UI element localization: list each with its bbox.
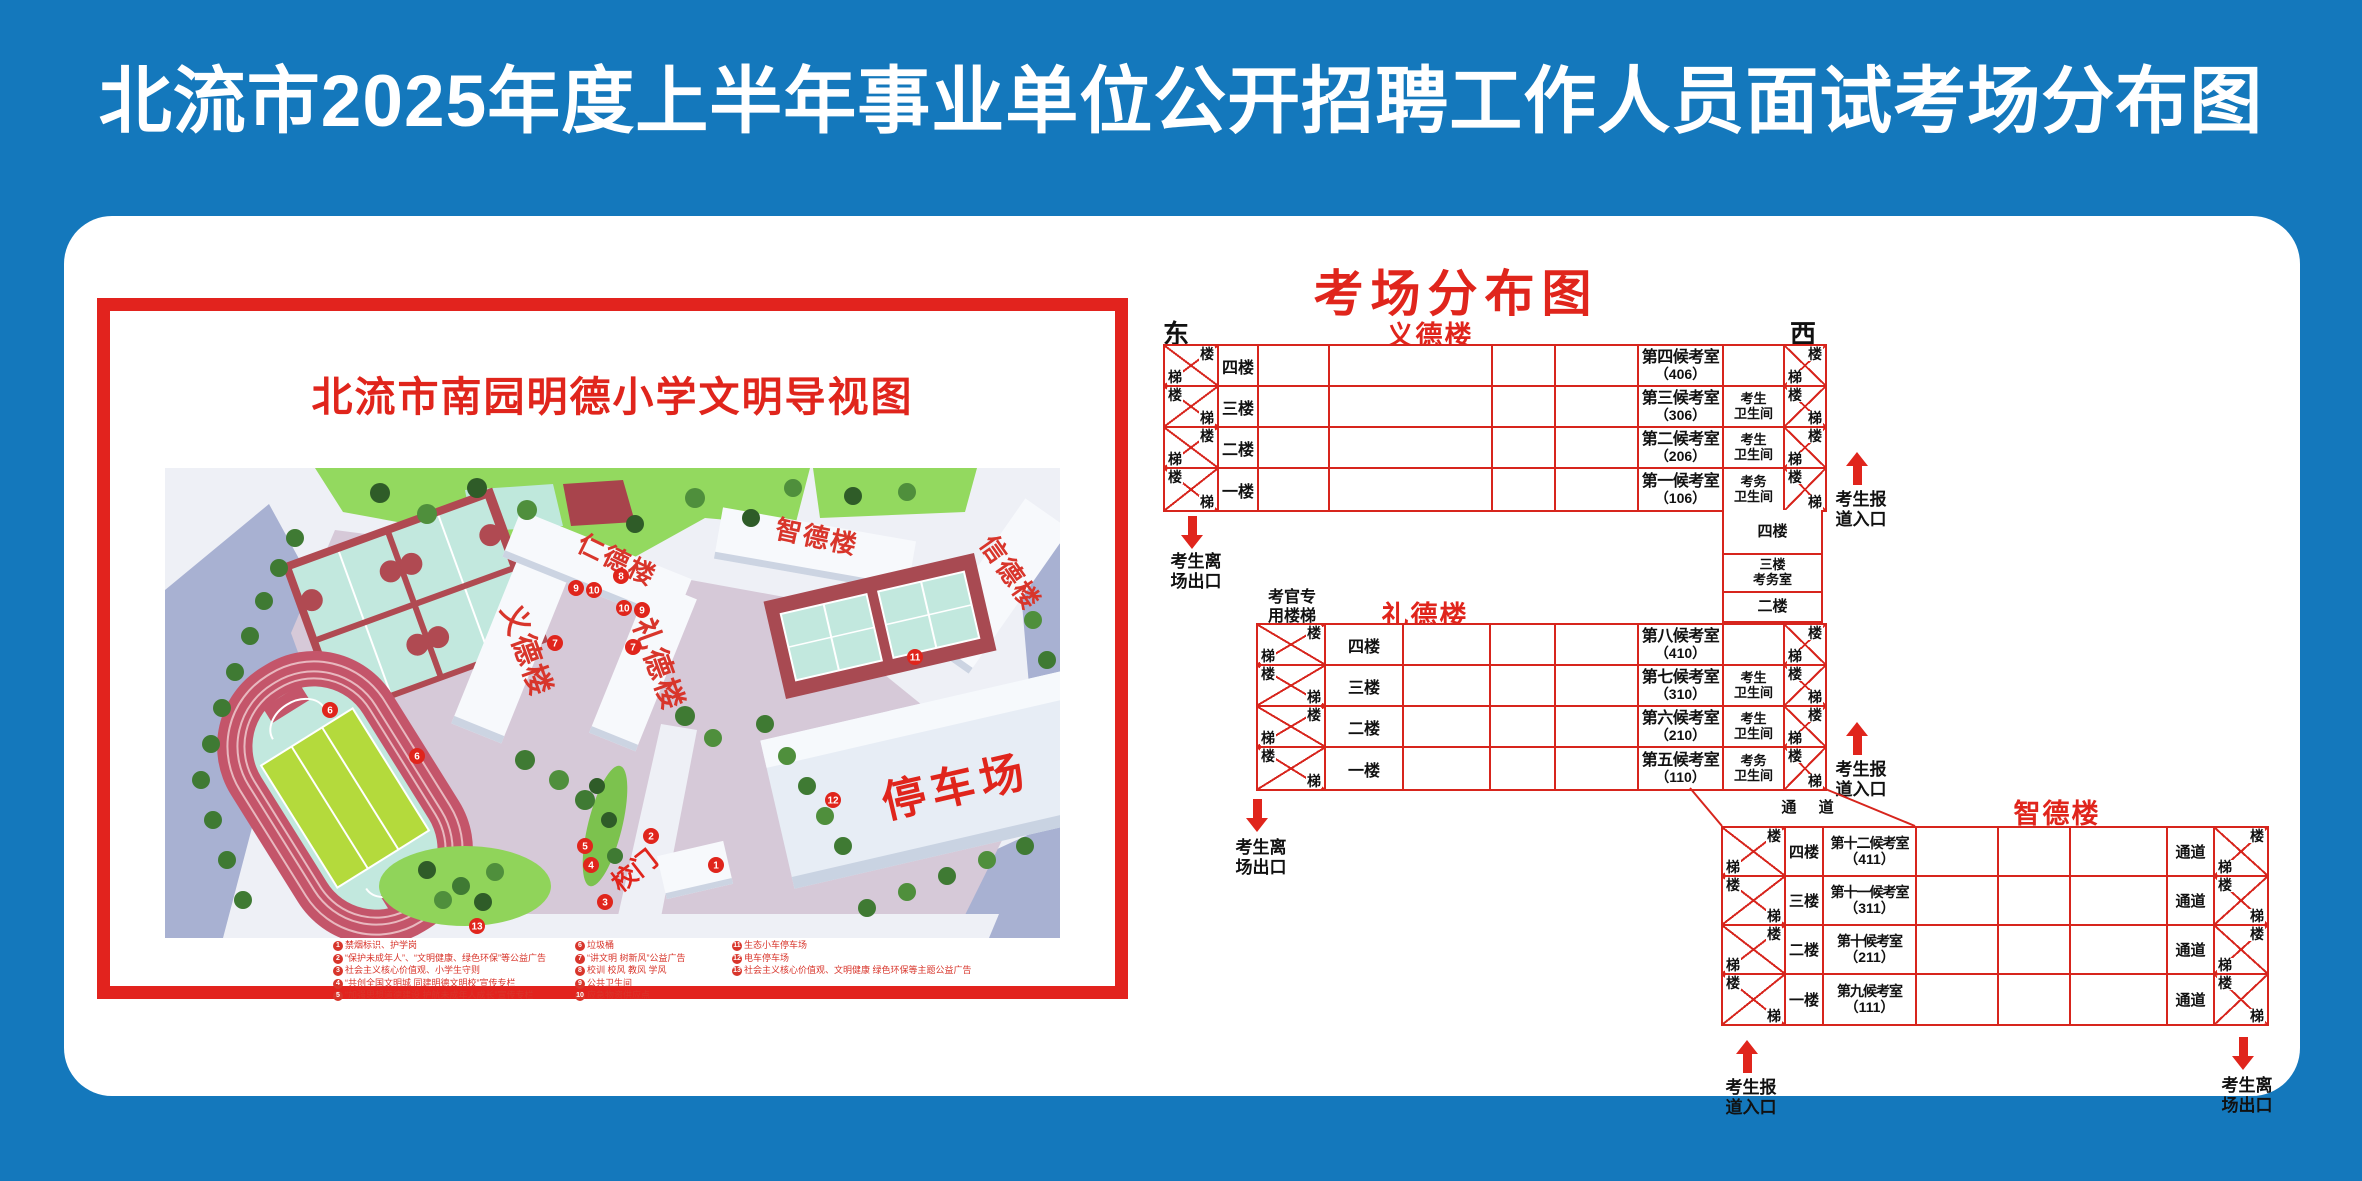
empty-room-cell bbox=[1330, 387, 1493, 428]
svg-text:3: 3 bbox=[602, 898, 608, 909]
empty-room-cell bbox=[1330, 469, 1493, 510]
waiting-room-cell: 第七候考室（310） bbox=[1639, 666, 1724, 707]
empty-room-cell bbox=[2071, 975, 2168, 1024]
legend-column-1: 1禁烟标识、护学岗 2“保护未成年人”、“文明健康、绿色环保”等公益广告 3社会… bbox=[333, 939, 546, 1002]
stair-cell: 楼梯 bbox=[2215, 975, 2267, 1024]
empty-room-cell bbox=[1556, 346, 1639, 387]
aisle-cell: 通道 bbox=[2168, 926, 2215, 975]
toilet-cell: 考生 卫生间 bbox=[1724, 428, 1785, 469]
exit-label: 考生离 场出口 bbox=[1236, 838, 1287, 879]
connector-cell: 三楼 考务室 bbox=[1724, 555, 1821, 593]
legend-item: 8校训 校风 教风 学风 bbox=[575, 964, 686, 977]
stair-cell: 楼梯 bbox=[1785, 428, 1825, 469]
empty-room-cell bbox=[1556, 625, 1639, 666]
exit-label: 考生离 场出口 bbox=[2222, 1076, 2273, 1117]
toilet-cell: 考生 卫生间 bbox=[1724, 707, 1785, 748]
svg-text:13: 13 bbox=[471, 922, 483, 933]
corridor-label: 通 道 bbox=[1781, 796, 1842, 817]
legend-item: 6垃圾桶 bbox=[575, 939, 686, 952]
svg-text:4: 4 bbox=[588, 861, 594, 872]
legend-item: 5“加强思想道德建设 护航未成年人成长”宣传专栏 bbox=[333, 989, 546, 1002]
empty-room-cell bbox=[1556, 707, 1639, 748]
empty-room-cell bbox=[1491, 707, 1556, 748]
stair-cell: 楼梯 bbox=[1258, 625, 1326, 666]
legend-column-2: 6垃圾桶 7“讲文明 树新风”公益广告 8校训 校风 教风 学风 9公共卫生间 … bbox=[575, 939, 686, 1002]
stair-cell: 楼梯 bbox=[1785, 666, 1825, 707]
legend-column-3: 11生态小车停车场 12电车停车场 13社会主义核心价值观、文明健康 绿色环保等… bbox=[732, 939, 972, 977]
floor-cell: 三楼 bbox=[1326, 666, 1404, 707]
aisle-cell: 通道 bbox=[2168, 975, 2215, 1024]
empty-room-cell bbox=[1259, 428, 1330, 469]
empty-room-cell bbox=[1259, 346, 1330, 387]
empty-room-cell bbox=[1999, 975, 2071, 1024]
empty-room-cell bbox=[1917, 926, 1999, 975]
map-aux-court-red bbox=[563, 480, 635, 526]
empty-room-cell bbox=[1404, 707, 1491, 748]
empty-room-cell bbox=[1917, 828, 1999, 877]
empty-cell bbox=[1724, 346, 1785, 387]
stair-cell: 楼梯 bbox=[1165, 346, 1219, 387]
stair-cell: 楼梯 bbox=[1723, 975, 1786, 1024]
empty-room-cell bbox=[1493, 346, 1556, 387]
svg-text:6: 6 bbox=[327, 706, 333, 717]
empty-room-cell bbox=[1491, 666, 1556, 707]
exit-arrow-icon bbox=[1246, 799, 1268, 832]
legend-item: 10应急物资供应点 bbox=[575, 989, 686, 1002]
stair-cell: 楼梯 bbox=[1785, 346, 1825, 387]
legend-item: 12电车停车场 bbox=[732, 952, 972, 965]
exit-label: 考生离 场出口 bbox=[1171, 552, 1222, 593]
entry-arrow-icon bbox=[1846, 722, 1868, 755]
empty-room-cell bbox=[1493, 428, 1556, 469]
svg-text:8: 8 bbox=[618, 572, 624, 583]
floor-cell: 一楼 bbox=[1326, 748, 1404, 789]
svg-text:7: 7 bbox=[552, 639, 558, 650]
toilet-cell: 考务 卫生间 bbox=[1724, 469, 1785, 510]
waiting-room-cell: 第一候考室（106） bbox=[1639, 469, 1724, 510]
empty-room-cell bbox=[1917, 975, 1999, 1024]
campus-map-illustration: 停车场 校门 bbox=[165, 468, 1060, 938]
stair-cell: 楼梯 bbox=[1258, 666, 1326, 707]
waiting-room-cell: 第三候考室（306） bbox=[1639, 387, 1724, 428]
svg-text:2: 2 bbox=[648, 832, 654, 843]
svg-text:7: 7 bbox=[630, 643, 636, 654]
exit-arrow-icon bbox=[1181, 516, 1203, 549]
empty-cell bbox=[1724, 625, 1785, 666]
floor-cell: 二楼 bbox=[1786, 926, 1824, 975]
empty-room-cell bbox=[1999, 877, 2071, 926]
waiting-room-cell: 第六候考室（210） bbox=[1639, 707, 1724, 748]
aisle-cell: 通道 bbox=[2168, 828, 2215, 877]
stair-cell: 楼梯 bbox=[1785, 469, 1825, 510]
floor-cell: 二楼 bbox=[1219, 428, 1259, 469]
aisle-cell: 通道 bbox=[2168, 877, 2215, 926]
lide-floor-table: 楼梯 四楼 第八候考室（410） 楼梯 楼梯 三楼 第七候考室（310） 考生 … bbox=[1256, 623, 1827, 791]
svg-text:12: 12 bbox=[827, 796, 839, 807]
svg-text:5: 5 bbox=[582, 842, 588, 853]
empty-room-cell bbox=[1556, 387, 1639, 428]
stair-cell: 楼梯 bbox=[1723, 828, 1786, 877]
stair-cell: 楼梯 bbox=[1723, 877, 1786, 926]
floor-cell: 三楼 bbox=[1219, 387, 1259, 428]
yide-floor-table: 楼梯 四楼 第四候考室（406） 楼梯 楼梯 三楼 第三候考室（306） 考生 … bbox=[1163, 344, 1827, 512]
empty-room-cell bbox=[1404, 666, 1491, 707]
svg-text:10: 10 bbox=[588, 586, 600, 597]
empty-room-cell bbox=[1999, 828, 2071, 877]
waiting-room-cell: 第十一候考室（311） bbox=[1824, 877, 1917, 926]
map-grass-right bbox=[813, 468, 977, 518]
exit-arrow-icon bbox=[2232, 1037, 2254, 1070]
stair-cell: 楼梯 bbox=[2215, 877, 2267, 926]
waiting-room-cell: 第四候考室（406） bbox=[1639, 346, 1724, 387]
floor-cell: 一楼 bbox=[1786, 975, 1824, 1024]
empty-room-cell bbox=[1493, 469, 1556, 510]
svg-text:9: 9 bbox=[639, 606, 645, 617]
empty-room-cell bbox=[2071, 828, 2168, 877]
stair-cell: 楼梯 bbox=[1165, 469, 1219, 510]
stair-cell: 楼梯 bbox=[1165, 428, 1219, 469]
legend-item: 3社会主义核心价值观、小学生守则 bbox=[333, 964, 546, 977]
stair-cell: 楼梯 bbox=[1258, 748, 1326, 789]
empty-room-cell bbox=[1330, 428, 1493, 469]
waiting-room-cell: 第九候考室（111） bbox=[1824, 975, 1917, 1024]
waiting-room-cell: 第二候考室（206） bbox=[1639, 428, 1724, 469]
empty-room-cell bbox=[1556, 666, 1639, 707]
svg-text:6: 6 bbox=[414, 752, 420, 763]
empty-room-cell bbox=[1556, 469, 1639, 510]
waiting-room-cell: 第十二候考室（411） bbox=[1824, 828, 1917, 877]
stair-cell: 楼梯 bbox=[2215, 926, 2267, 975]
stair-cell: 楼梯 bbox=[1165, 387, 1219, 428]
floor-cell: 一楼 bbox=[1219, 469, 1259, 510]
floor-cell: 四楼 bbox=[1326, 625, 1404, 666]
legend-item: 7“讲文明 树新风”公益广告 bbox=[575, 952, 686, 965]
stair-cell: 楼梯 bbox=[1785, 387, 1825, 428]
floor-cell: 三楼 bbox=[1786, 877, 1824, 926]
empty-room-cell bbox=[2071, 877, 2168, 926]
empty-room-cell bbox=[1491, 625, 1556, 666]
stair-cell: 楼梯 bbox=[1723, 926, 1786, 975]
waiting-room-cell: 第十候考室（211） bbox=[1824, 926, 1917, 975]
empty-room-cell bbox=[1259, 387, 1330, 428]
stair-cell: 楼梯 bbox=[1785, 707, 1825, 748]
entry-label: 考生报 道入口 bbox=[1836, 490, 1887, 531]
entry-label: 考生报 道入口 bbox=[1726, 1078, 1777, 1119]
svg-text:1: 1 bbox=[713, 861, 719, 872]
empty-room-cell bbox=[1493, 387, 1556, 428]
connector-cell: 二楼 bbox=[1724, 593, 1821, 621]
empty-room-cell bbox=[2071, 926, 2168, 975]
connector-cell: 四楼 bbox=[1724, 510, 1821, 555]
floor-cell: 四楼 bbox=[1786, 828, 1824, 877]
stair-cell: 楼梯 bbox=[1785, 625, 1825, 666]
svg-text:11: 11 bbox=[910, 653, 921, 664]
poster-page: { "colors":{"background_blue":"#1478BC",… bbox=[0, 0, 2362, 1181]
poster-title: 北流市南园明德小学文明导视图 bbox=[110, 363, 1115, 423]
empty-room-cell bbox=[1404, 625, 1491, 666]
entry-arrow-icon bbox=[1736, 1040, 1758, 1073]
campus-guide-poster: 北流市南园明德小学文明导视图 bbox=[97, 298, 1128, 999]
legend-item: 1禁烟标识、护学岗 bbox=[333, 939, 546, 952]
legend-item: 13社会主义核心价值观、文明健康 绿色环保等主题公益广告 bbox=[732, 964, 972, 977]
empty-room-cell bbox=[1330, 346, 1493, 387]
svg-text:10: 10 bbox=[618, 604, 630, 615]
entry-arrow-icon bbox=[1846, 452, 1868, 485]
empty-room-cell bbox=[1999, 926, 2071, 975]
floor-cell: 二楼 bbox=[1326, 707, 1404, 748]
legend-item: 9公共卫生间 bbox=[575, 977, 686, 990]
page-title: 北流市2025年度上半年事业单位公开招聘工作人员面试考场分布图 bbox=[0, 42, 2362, 148]
stair-cell: 楼梯 bbox=[1258, 707, 1326, 748]
stair-cell: 楼梯 bbox=[2215, 828, 2267, 877]
legend-item: 4“共创全国文明城 同建明德文明校”宣传专栏 bbox=[333, 977, 546, 990]
zhide-floor-table: 楼梯 四楼 第十二候考室（411） 通道 楼梯 楼梯 三楼 第十一候考室（311… bbox=[1721, 826, 2269, 1026]
waiting-room-cell: 第八候考室（410） bbox=[1639, 625, 1724, 666]
examiner-stairs-label: 考官专 用楼梯 bbox=[1268, 588, 1316, 626]
svg-text:9: 9 bbox=[573, 584, 579, 595]
empty-room-cell bbox=[1491, 748, 1556, 789]
toilet-cell: 考生 卫生间 bbox=[1724, 387, 1785, 428]
empty-room-cell bbox=[1404, 748, 1491, 789]
legend-item: 11生态小车停车场 bbox=[732, 939, 972, 952]
legend-item: 2“保护未成年人”、“文明健康、绿色环保”等公益广告 bbox=[333, 952, 546, 965]
empty-room-cell bbox=[1259, 469, 1330, 510]
empty-room-cell bbox=[1556, 428, 1639, 469]
toilet-cell: 考生 卫生间 bbox=[1724, 666, 1785, 707]
connector-column: 四楼 三楼 考务室 二楼 bbox=[1722, 510, 1823, 623]
empty-room-cell bbox=[1917, 877, 1999, 926]
floor-cell: 四楼 bbox=[1219, 346, 1259, 387]
